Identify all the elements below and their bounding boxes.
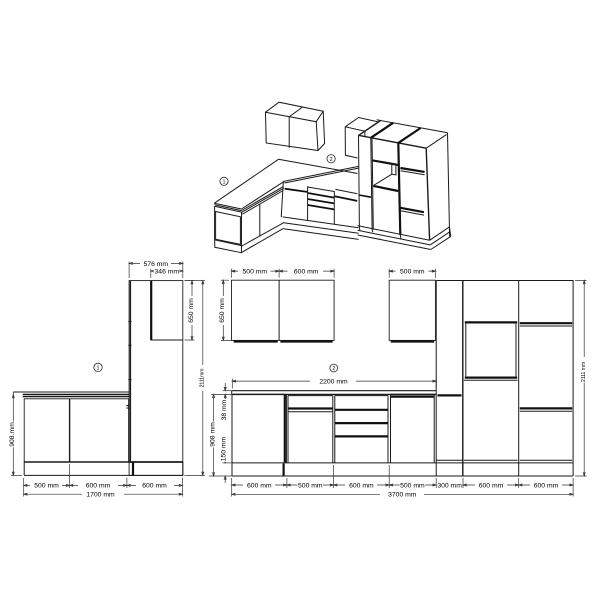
svg-text:1: 1	[97, 366, 100, 372]
svg-text:2200 mm: 2200 mm	[319, 379, 348, 386]
svg-text:908 mm: 908 mm	[209, 422, 216, 447]
svg-text:650 mm: 650 mm	[219, 298, 226, 323]
svg-text:346 mm: 346 mm	[155, 269, 180, 276]
svg-text:600 mm: 600 mm	[247, 482, 272, 489]
svg-text:600 mm: 600 mm	[534, 482, 559, 489]
svg-text:908 mm: 908 mm	[9, 422, 16, 447]
svg-text:650 mm: 650 mm	[188, 298, 195, 323]
svg-text:2: 2	[332, 366, 335, 372]
svg-text:500 mm: 500 mm	[34, 482, 59, 489]
svg-text:1: 1	[223, 179, 226, 185]
svg-text:500 mm: 500 mm	[400, 482, 425, 489]
svg-text:500 mm: 500 mm	[298, 482, 323, 489]
svg-text:600 mm: 600 mm	[479, 482, 504, 489]
svg-text:2111 mm: 2111 mm	[581, 362, 587, 382]
svg-text:600 mm: 600 mm	[86, 482, 111, 489]
svg-text:300 mm: 300 mm	[437, 482, 462, 489]
svg-text:2: 2	[330, 157, 333, 163]
svg-text:3700 mm: 3700 mm	[388, 492, 417, 499]
svg-text:38 mm: 38 mm	[221, 399, 228, 420]
svg-text:2111mm: 2111mm	[200, 369, 206, 388]
svg-text:500 mm: 500 mm	[400, 269, 425, 276]
svg-text:600 mm: 600 mm	[294, 269, 319, 276]
svg-text:576 mm: 576 mm	[144, 261, 169, 268]
svg-text:1700 mm: 1700 mm	[86, 492, 115, 499]
svg-text:150 mm: 150 mm	[221, 436, 228, 461]
svg-text:600 mm: 600 mm	[142, 482, 167, 489]
svg-text:500 mm: 500 mm	[243, 269, 268, 276]
svg-text:600 mm: 600 mm	[349, 482, 374, 489]
